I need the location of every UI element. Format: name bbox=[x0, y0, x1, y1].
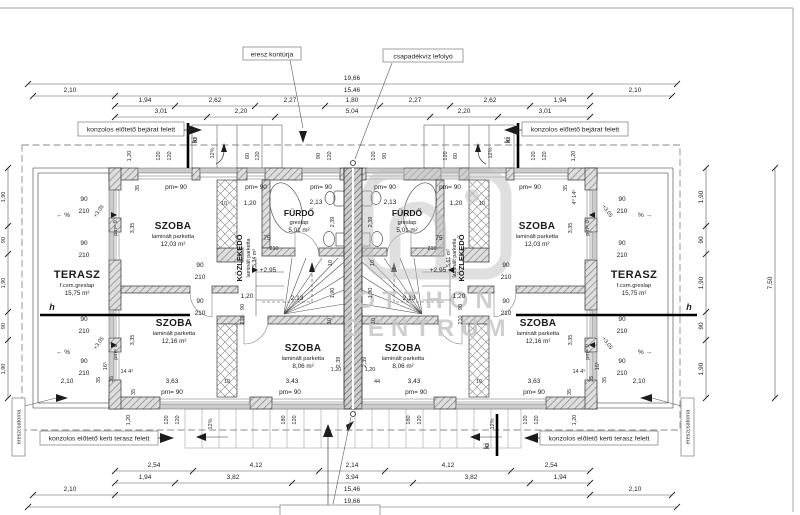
dim: 10 bbox=[328, 260, 334, 266]
dim: 1,94 bbox=[139, 474, 152, 481]
svg-text:5,61 m²: 5,61 m² bbox=[446, 249, 452, 267]
exit-label: ki bbox=[482, 443, 491, 449]
dim: 120 bbox=[417, 415, 423, 424]
room-szoba-mid-left: SZOBA laminált parketta 12,16 m² bbox=[153, 318, 196, 345]
dim: 2,27 bbox=[409, 97, 422, 104]
dim: 120 bbox=[542, 151, 548, 160]
svg-text:5,34 m²: 5,34 m² bbox=[252, 249, 258, 267]
dim: 19,66 bbox=[344, 75, 361, 82]
dim: 2,14 bbox=[346, 462, 359, 469]
dim: 90 bbox=[80, 358, 88, 365]
svg-text:FÜRDŐ: FÜRDŐ bbox=[284, 207, 315, 218]
dim: 90 bbox=[618, 316, 626, 323]
dim: 7,50 bbox=[767, 276, 774, 289]
svg-text:laminált parketta: laminált parketta bbox=[452, 239, 458, 278]
wc-left bbox=[336, 233, 344, 246]
dim: 90 bbox=[382, 153, 388, 159]
dim: 1,94 bbox=[554, 474, 567, 481]
dim: 2,54 bbox=[148, 462, 161, 469]
dim: 12% bbox=[490, 418, 496, 429]
svg-text:laminált parketta: laminált parketta bbox=[153, 331, 196, 337]
dim: ← % bbox=[56, 212, 70, 219]
dim: 3,35 bbox=[568, 223, 574, 234]
svg-text:TERASZ: TERASZ bbox=[54, 269, 100, 281]
dim: 1,90 bbox=[1, 364, 7, 375]
dim: 35 bbox=[109, 376, 115, 382]
dim: 4⁰ 14⁵ bbox=[571, 189, 578, 204]
gutter-label-right: ereszcsatorna bbox=[686, 409, 692, 444]
dim: 90 bbox=[502, 262, 510, 269]
dim: 90 bbox=[1, 323, 7, 329]
dim: 1,20 bbox=[450, 200, 463, 207]
cutoff-label-box bbox=[280, 505, 380, 515]
dim: 3,94 bbox=[346, 474, 359, 481]
dim: 210 bbox=[240, 315, 246, 324]
dim: +3,05 bbox=[93, 204, 106, 219]
dim: 120 bbox=[523, 415, 529, 424]
dim: 15,46 bbox=[344, 87, 361, 94]
dim: pm= 90 bbox=[310, 184, 332, 191]
rain-downpipe-label: csapadékvíz lefolyó bbox=[393, 54, 453, 61]
dim: 16⁵ bbox=[102, 362, 109, 370]
dim: 90 bbox=[502, 298, 510, 305]
svg-text:SZOBA: SZOBA bbox=[519, 221, 556, 232]
dim: 120 bbox=[156, 151, 162, 160]
canopy-garden-label-right: konzolos előtető kerti terasz felett bbox=[549, 436, 650, 443]
dim: 3,63 bbox=[166, 378, 179, 385]
canopy-garden-label-left: konzolos előtető kerti terasz felett bbox=[49, 436, 150, 443]
svg-text:KÖZLEKEDŐ: KÖZLEKEDŐ bbox=[457, 234, 466, 281]
dim: 210 bbox=[79, 328, 90, 335]
dim: pm= 90 bbox=[279, 389, 301, 396]
svg-text:SZOBA: SZOBA bbox=[285, 343, 322, 354]
dim: 2,10 bbox=[64, 87, 77, 94]
dim: 90 bbox=[80, 316, 88, 323]
dim: 14 4⁵ bbox=[573, 368, 586, 375]
entrance-canopies bbox=[192, 125, 514, 168]
canopy-slope-arrows bbox=[221, 143, 481, 152]
eaves-contour-label: eresz kontúrja bbox=[251, 52, 294, 59]
dim: pm= 0 bbox=[585, 220, 591, 235]
dim: pm= 0 bbox=[113, 344, 119, 359]
dim: 4,12 bbox=[250, 462, 263, 469]
dim: 210 bbox=[79, 208, 90, 215]
dim: 120 bbox=[327, 151, 333, 160]
dim: 90 bbox=[240, 304, 246, 310]
dim: 120 bbox=[255, 151, 261, 160]
dim: 1,90 bbox=[330, 288, 336, 299]
dim: 35 bbox=[563, 185, 569, 191]
dim: 180 bbox=[406, 415, 412, 424]
dim: 2,10 bbox=[64, 486, 77, 493]
svg-text:greslap: greslap bbox=[289, 220, 308, 226]
dim: 1,94 bbox=[139, 97, 152, 104]
floor-plan-drawing: OTTHON CENTRUM h h ki ki ki SZOBA laminá… bbox=[0, 0, 800, 515]
watermark-line1: OTTHON bbox=[356, 287, 499, 314]
room-szoba-small-right: SZOBA laminált parketta 8,06 m² bbox=[382, 343, 425, 370]
dim: 1,90 bbox=[1, 192, 7, 203]
stairs-left-arrow bbox=[309, 262, 315, 272]
dim: 210 bbox=[79, 252, 90, 259]
floor-plan-screenshot: OTTHON CENTRUM h h ki ki ki SZOBA laminá… bbox=[0, 0, 800, 515]
dim: 2,10 bbox=[633, 378, 646, 385]
svg-text:5,01 m²: 5,01 m² bbox=[396, 227, 417, 234]
dim: 10 bbox=[224, 379, 230, 385]
dim: 1,20 bbox=[127, 151, 133, 162]
dim: 16⁵ bbox=[594, 362, 601, 370]
svg-text:laminált parketta: laminált parketta bbox=[282, 356, 325, 362]
dim: 90 bbox=[196, 298, 204, 305]
dim: 3,82 bbox=[227, 474, 240, 481]
dim: 1,20 bbox=[571, 151, 577, 162]
dim: 210 bbox=[617, 208, 628, 215]
dim: 1,90 bbox=[698, 362, 705, 375]
dim: pm= 90 bbox=[439, 184, 461, 191]
dim: 3,35 bbox=[130, 223, 136, 234]
room-terasz-right: TERASZ f.csm.greslap 15,75 m² bbox=[611, 269, 657, 297]
svg-text:8,06 m²: 8,06 m² bbox=[392, 363, 413, 370]
dim: 5,04 bbox=[346, 108, 359, 115]
dim: 210 bbox=[427, 246, 436, 252]
dim: 44 bbox=[374, 379, 380, 385]
dim: 1,20 bbox=[453, 293, 466, 300]
dim: 3,35 bbox=[568, 335, 574, 346]
dim: pm= 90 bbox=[374, 184, 396, 191]
dim: 90 bbox=[698, 236, 705, 244]
dim: 90 bbox=[316, 153, 322, 159]
dim: 2,10 bbox=[629, 87, 642, 94]
garden-canopy-grid bbox=[185, 409, 521, 448]
dim: 12% bbox=[210, 147, 216, 158]
dim: % → bbox=[638, 212, 652, 219]
dim: 3,01 bbox=[155, 108, 168, 115]
dim: 14 4⁵ bbox=[121, 368, 134, 375]
dim: 19,66 bbox=[344, 498, 361, 505]
svg-text:f.csm.greslap: f.csm.greslap bbox=[60, 283, 94, 289]
dim: pm= 0 bbox=[585, 344, 591, 359]
dim: 1,80 bbox=[346, 97, 359, 104]
dim: pm= 90 bbox=[519, 184, 541, 191]
dim: 12% bbox=[488, 147, 494, 158]
svg-text:15,75 m²: 15,75 m² bbox=[622, 290, 647, 297]
dim: 60 bbox=[245, 153, 251, 159]
svg-text:f.csm.greslap: f.csm.greslap bbox=[617, 283, 651, 289]
dim: +2,95 bbox=[430, 267, 447, 274]
svg-text:8,06 m²: 8,06 m² bbox=[292, 363, 313, 370]
dim: 2,13 bbox=[384, 199, 397, 206]
exit-label: ki bbox=[190, 137, 199, 143]
svg-text:12,03 m²: 12,03 m² bbox=[525, 241, 550, 248]
svg-text:laminált parketta: laminált parketta bbox=[152, 234, 195, 240]
svg-text:KÖZLEKEDŐ: KÖZLEKEDŐ bbox=[235, 234, 244, 281]
dim: +3,05 bbox=[600, 336, 613, 351]
dim: 35 bbox=[135, 185, 141, 191]
dim: 90 bbox=[196, 262, 204, 269]
room-furdo-left: FÜRDŐ greslap 5,01 m² bbox=[284, 207, 315, 234]
dim: 3,43 bbox=[408, 378, 421, 385]
svg-text:SZOBA: SZOBA bbox=[385, 343, 422, 354]
dim: 2,20 bbox=[235, 108, 248, 115]
dim: 10 bbox=[479, 201, 485, 207]
dim: 120 bbox=[167, 151, 173, 160]
dim: 3,82 bbox=[465, 474, 478, 481]
dim: 120 bbox=[164, 415, 170, 424]
dim: +3,05 bbox=[600, 204, 613, 219]
dim: 10 bbox=[476, 379, 482, 385]
dim: 3,01 bbox=[539, 108, 552, 115]
dim: 2,10 bbox=[61, 378, 74, 385]
dim: 35 bbox=[131, 389, 137, 395]
svg-text:TERASZ: TERASZ bbox=[611, 269, 657, 281]
exit-label: ki bbox=[503, 137, 512, 143]
room-szoba-top-left: SZOBA laminált parketta 12,03 m² bbox=[152, 221, 195, 248]
dim: 3,35 bbox=[130, 335, 136, 346]
dim: 1,94 bbox=[554, 97, 567, 104]
dim: 35 bbox=[567, 389, 573, 395]
dim: 75 bbox=[435, 235, 443, 242]
canopy-entrance-label-left: konzolos előtető bejárat felett bbox=[87, 127, 176, 134]
dim: pm= 90 bbox=[405, 389, 427, 396]
dim: 210 bbox=[195, 274, 206, 281]
dim: 75 bbox=[263, 235, 271, 242]
dim: 1,90 bbox=[1, 278, 7, 289]
svg-text:12,16 m²: 12,16 m² bbox=[526, 338, 551, 345]
dim: % → bbox=[638, 349, 652, 356]
dim: 120 bbox=[443, 151, 449, 160]
dim: 210 bbox=[79, 370, 90, 377]
dim: 120 bbox=[534, 415, 540, 424]
dim: 12% bbox=[208, 418, 214, 429]
dim: 10 bbox=[327, 318, 333, 324]
gutter-label-left: ereszcsatorna bbox=[17, 409, 23, 444]
dim: 2,13 bbox=[310, 199, 323, 206]
dim: 90 bbox=[80, 240, 88, 247]
dim: 1,90 bbox=[698, 276, 705, 289]
section-label-right: h bbox=[686, 302, 692, 312]
dim: 2,39 bbox=[362, 357, 368, 368]
watermark-line2: CENTRUM bbox=[344, 315, 513, 342]
dim: 210 bbox=[501, 310, 512, 317]
svg-text:laminált parketta: laminált parketta bbox=[517, 331, 560, 337]
svg-text:SZOBA: SZOBA bbox=[155, 221, 192, 232]
dim: 1,20 bbox=[241, 293, 254, 300]
dim: 1,90 bbox=[698, 190, 705, 203]
dim: 2,39 bbox=[336, 357, 342, 368]
dim: 2,62 bbox=[484, 97, 497, 104]
dim: 4,12 bbox=[442, 462, 455, 469]
dim: 90 bbox=[618, 358, 626, 365]
dim: +3,05 bbox=[93, 336, 106, 351]
canopy-entrance-label-right: konzolos előtető bejárat felett bbox=[531, 127, 620, 134]
dim: 10 bbox=[370, 260, 376, 266]
dim: 2,10 bbox=[629, 486, 642, 493]
dim: 2,39 bbox=[330, 217, 336, 228]
room-szoba-small-left: SZOBA laminált parketta 8,06 m² bbox=[282, 343, 325, 370]
dim: 2,39 bbox=[368, 217, 374, 228]
dim: 1,20 bbox=[572, 415, 578, 426]
dim: 2,27 bbox=[284, 97, 297, 104]
dim: 35 bbox=[589, 376, 595, 382]
svg-text:FÜRDŐ: FÜRDŐ bbox=[392, 207, 423, 218]
dim: 120 bbox=[175, 415, 181, 424]
svg-text:15,75 m²: 15,75 m² bbox=[65, 290, 90, 297]
dim: pm= 0 bbox=[113, 220, 119, 235]
dim: 120 bbox=[292, 415, 298, 424]
dim: 210 bbox=[458, 315, 464, 324]
dim: 60 bbox=[453, 153, 459, 159]
dim: 210 bbox=[195, 310, 206, 317]
dim: 210 bbox=[617, 370, 628, 377]
dim: 2,20 bbox=[458, 108, 471, 115]
section-label-left: h bbox=[49, 302, 55, 312]
dim: ← % bbox=[56, 349, 70, 356]
svg-text:5,01 m²: 5,01 m² bbox=[288, 227, 309, 234]
dim: 2,13 bbox=[403, 295, 416, 302]
dim: 210 bbox=[501, 274, 512, 281]
room-terasz-left: TERASZ f.csm.greslap 15,75 m² bbox=[54, 269, 100, 297]
dim: 2,62 bbox=[209, 97, 222, 104]
room-kozlekedo-left: KÖZLEKEDŐ laminált parketta 5,34 m² bbox=[235, 234, 258, 281]
dim: 3,63 bbox=[528, 378, 541, 385]
dim: 1,20 bbox=[126, 415, 132, 426]
room-szoba-top-right: SZOBA laminált parketta 12,03 m² bbox=[516, 221, 559, 248]
svg-text:laminált parketta: laminált parketta bbox=[516, 234, 559, 240]
dim: +2,95 bbox=[260, 267, 277, 274]
dim: 90 bbox=[618, 196, 626, 203]
dim: 120 bbox=[531, 151, 537, 160]
dim: 90 bbox=[80, 196, 88, 203]
dim: 2,13 bbox=[291, 295, 304, 302]
svg-text:laminált parketta: laminált parketta bbox=[382, 356, 425, 362]
dim: 210 bbox=[269, 246, 278, 252]
svg-text:SZOBA: SZOBA bbox=[156, 318, 193, 329]
dim: 180 bbox=[281, 415, 287, 424]
svg-text:12,03 m²: 12,03 m² bbox=[161, 241, 186, 248]
svg-text:12,16 m²: 12,16 m² bbox=[162, 338, 187, 345]
dim: 10 bbox=[371, 318, 377, 324]
dim: 120 bbox=[371, 151, 377, 160]
dim: 90 bbox=[458, 304, 464, 310]
dim: 210 bbox=[617, 328, 628, 335]
dim: 2,54 bbox=[545, 462, 558, 469]
dim: 1,20 bbox=[244, 200, 257, 207]
dim: pm= 90 bbox=[161, 389, 183, 396]
dim: 35 bbox=[96, 377, 102, 383]
dim: 35 bbox=[602, 377, 608, 383]
dim: 10 bbox=[221, 201, 227, 207]
svg-text:greslap: greslap bbox=[397, 220, 416, 226]
washbasin-left bbox=[334, 191, 344, 206]
svg-text:SZOBA: SZOBA bbox=[520, 318, 557, 329]
dim: 90 bbox=[698, 322, 705, 330]
dim: 15,46 bbox=[344, 486, 361, 493]
dim: 90 bbox=[1, 237, 7, 243]
dim: pm= 90 bbox=[245, 184, 267, 191]
room-szoba-mid-right: SZOBA laminált parketta 12,16 m² bbox=[517, 318, 560, 345]
dim: pm= 90 bbox=[523, 389, 545, 396]
dim: 3,43 bbox=[286, 378, 299, 385]
dim: 210 bbox=[617, 252, 628, 259]
dim: 90 bbox=[618, 240, 626, 247]
dim: pm= 90 bbox=[165, 184, 187, 191]
dim: 1,90 bbox=[368, 288, 374, 299]
